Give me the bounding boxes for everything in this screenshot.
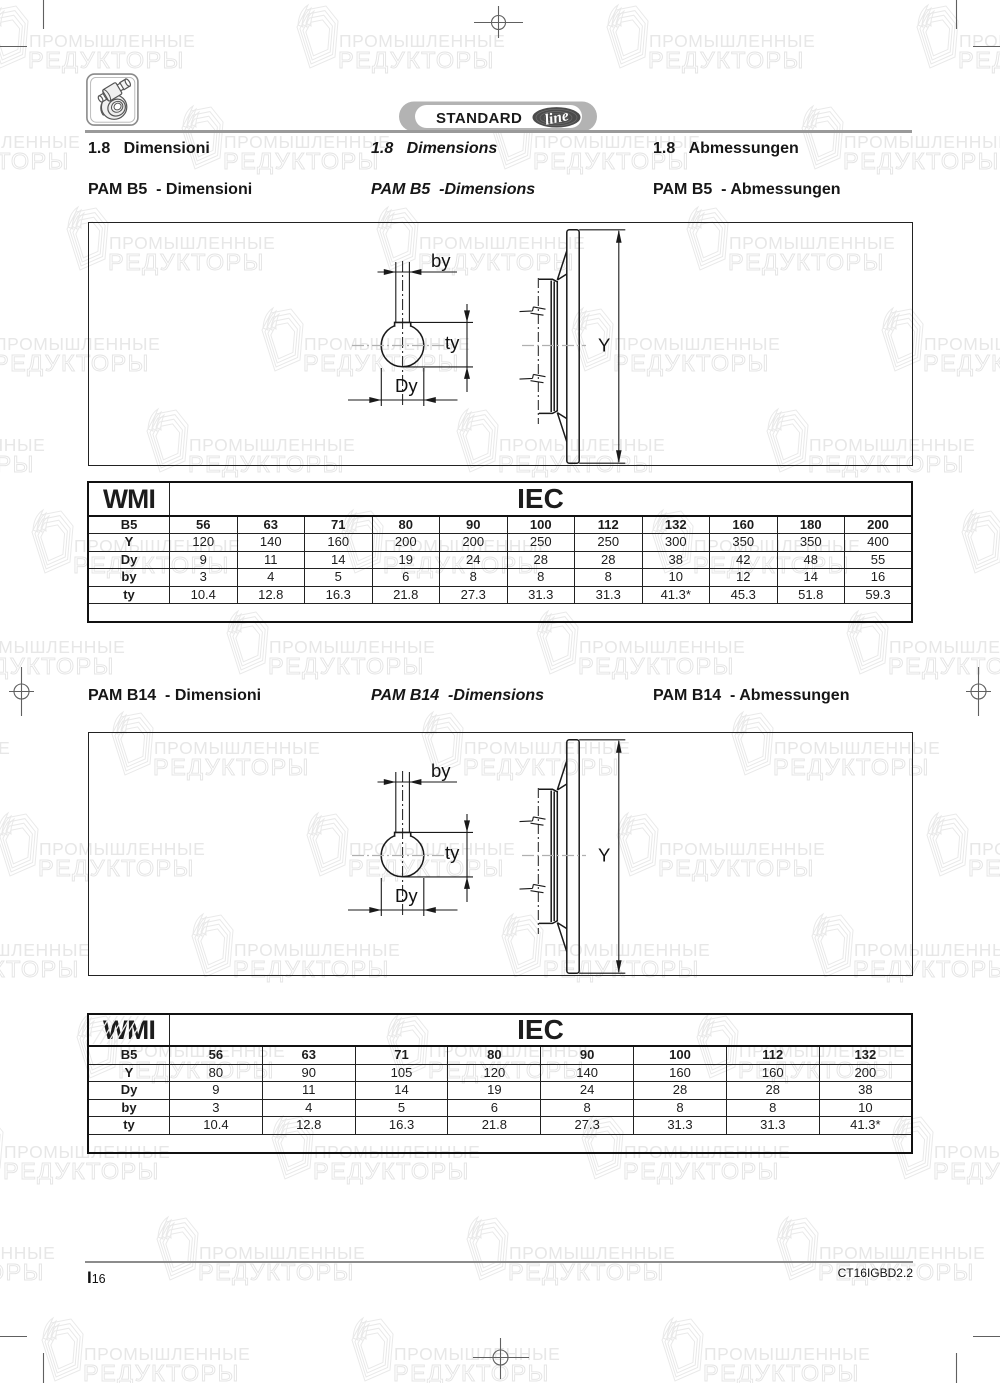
svg-text:STANDARD: STANDARD <box>436 110 522 127</box>
svg-text:Y: Y <box>598 335 610 356</box>
svg-text:Dy: Dy <box>395 375 418 396</box>
svg-text:by: by <box>431 250 451 271</box>
svg-text:ty: ty <box>445 332 460 353</box>
